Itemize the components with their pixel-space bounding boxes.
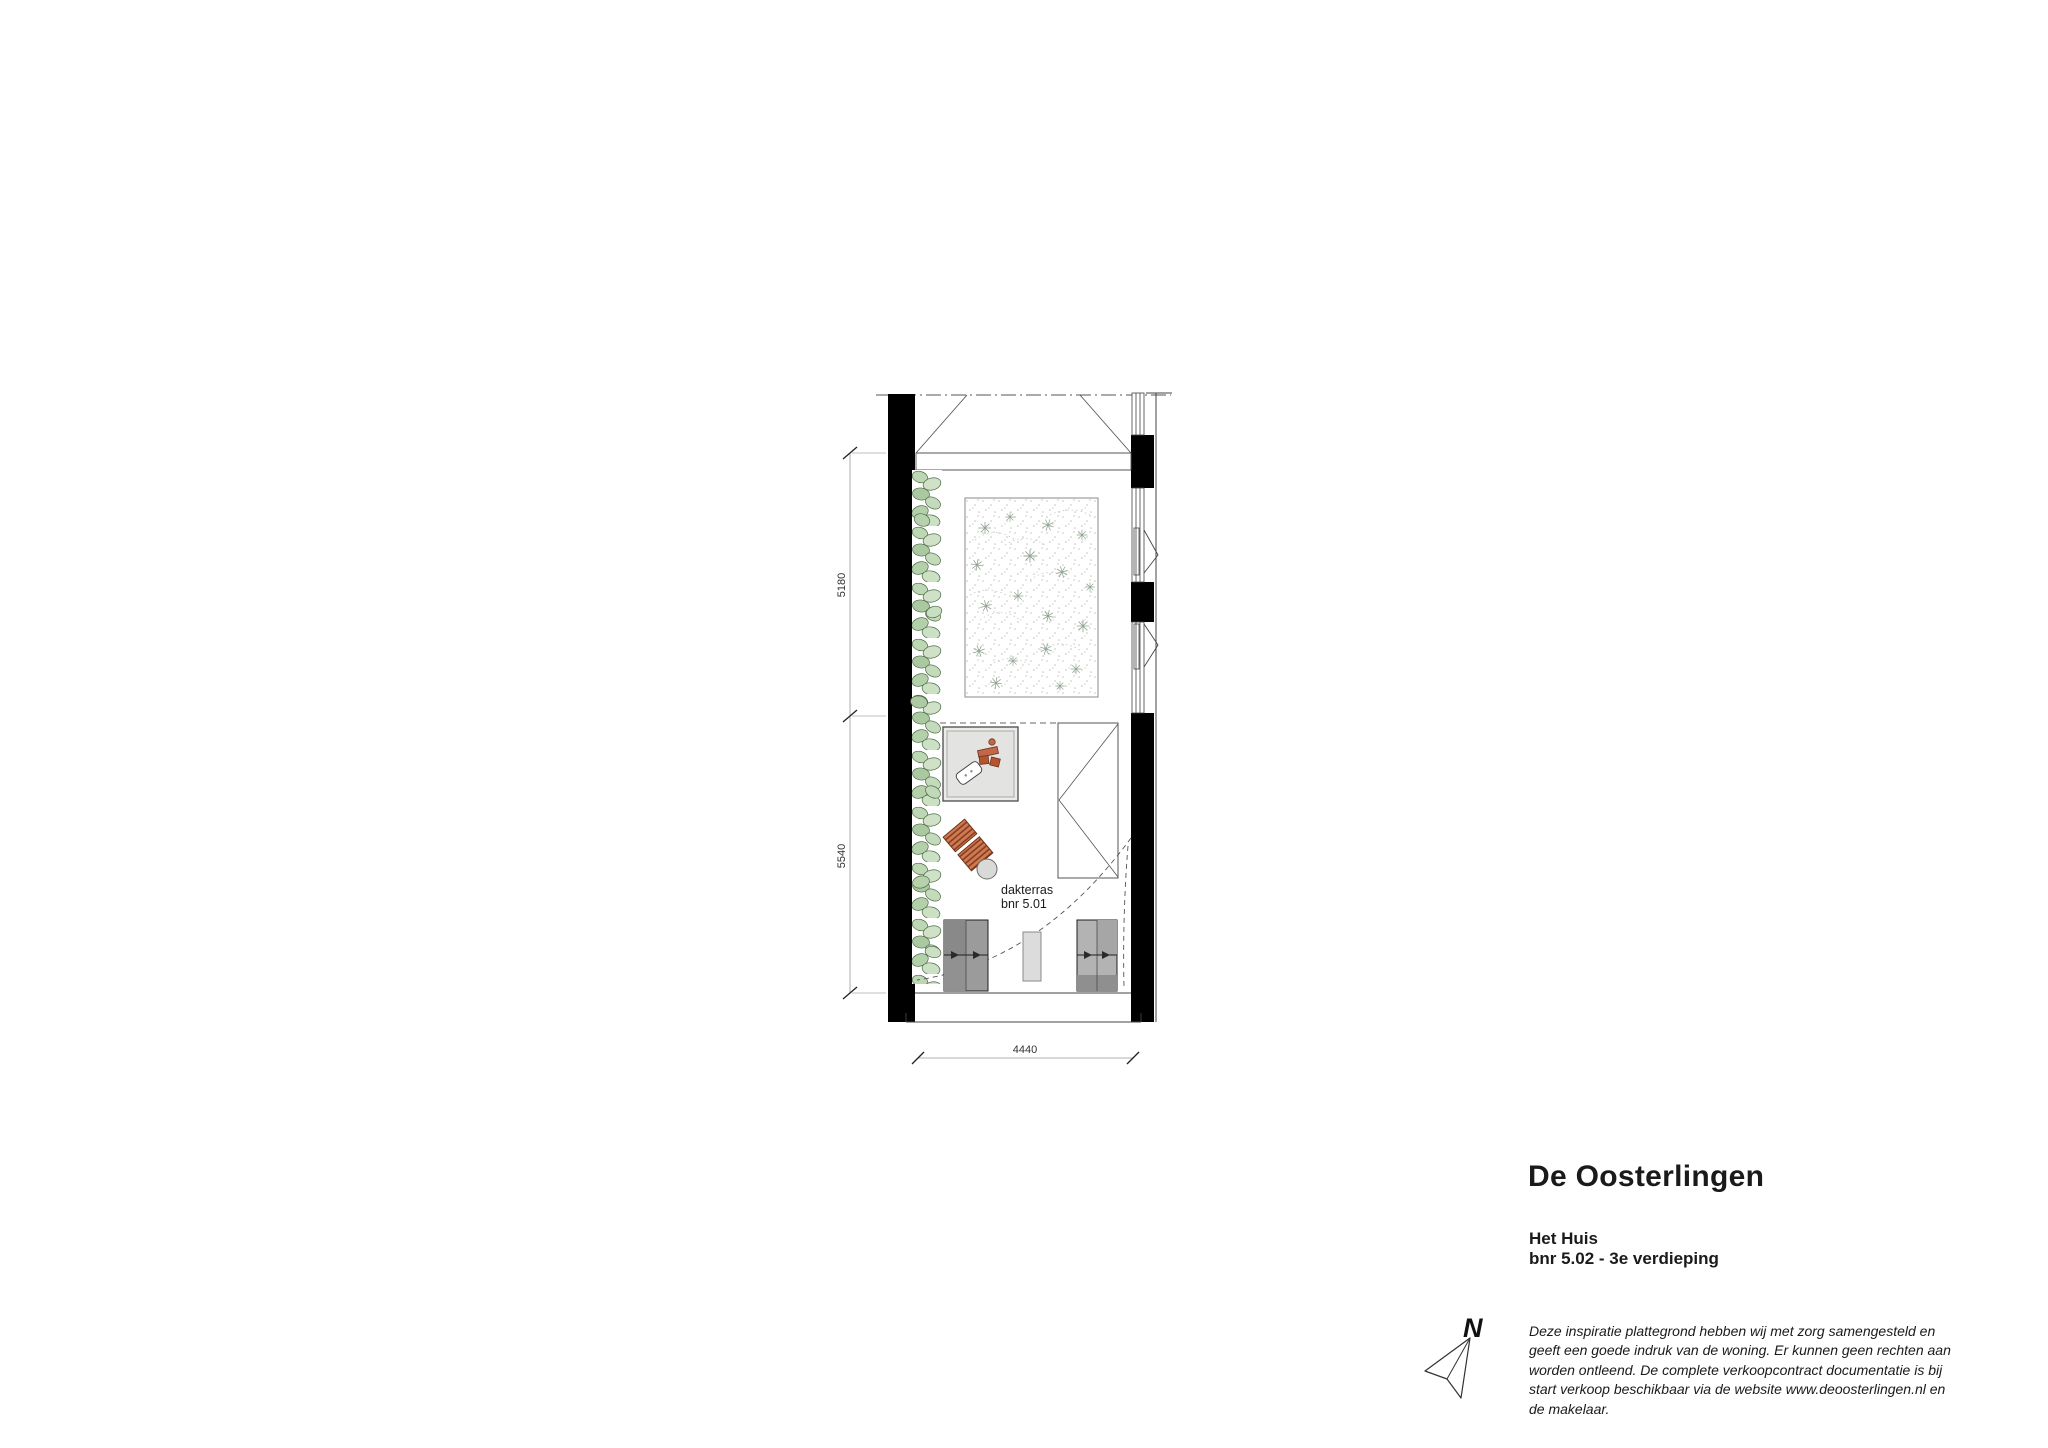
hedge [910,470,944,984]
left-wall [888,394,915,1022]
floor-plan-canvas: 5180 5540 4440 dakterras bnr 5.01 N [0,0,2048,1448]
disclaimer-text: Deze inspiratie plattegrond hebben wij m… [1529,1322,1989,1419]
subtitle-block: Het Huis bnr 5.02 - 3e verdieping [1529,1229,1719,1269]
room-label: dakterras bnr 5.01 [1001,883,1053,911]
disclaimer-line: Deze inspiratie plattegrond hebben wij m… [1529,1322,1989,1341]
plate-icon [989,739,995,745]
building-name: Het Huis [1529,1229,1719,1249]
north-arrow-icon: N [1425,1313,1483,1398]
sofa-right [1077,920,1117,991]
side-table [977,859,997,879]
unit-floor-label: bnr 5.02 - 3e verdieping [1529,1249,1719,1269]
dimension-left: 5180 5540 [836,447,886,999]
terrace-platform [943,727,1018,801]
coffee-table [1023,932,1041,981]
dimension-bottom: 4440 [912,1044,1139,1064]
dim-label-4440: 4440 [1013,1044,1037,1056]
door-swing [1058,723,1118,878]
rooflight-trapezoid [916,395,1131,470]
disclaimer-line: geeft een goede indruk van de woning. Er… [1529,1341,1989,1360]
bottom-edge [906,993,1141,1022]
dim-label-5540: 5540 [836,844,848,868]
disclaimer-line: de makelaar. [1529,1400,1989,1419]
cushion-icon [990,757,1001,767]
sedum-roof [965,498,1098,697]
svg-text:dakterras: dakterras [1001,883,1053,897]
page-title: De Oosterlingen [1528,1160,1764,1194]
north-label: N [1463,1313,1483,1343]
disclaimer-line: start verkoop beschikbaar via de website… [1529,1380,1989,1399]
svg-text:bnr 5.01: bnr 5.01 [1001,897,1047,911]
sofa-left [944,920,988,991]
cushion-icon [979,756,989,765]
dim-label-5180: 5180 [836,573,848,597]
disclaimer-line: worden ontleend. De complete verkoopcont… [1529,1361,1989,1380]
